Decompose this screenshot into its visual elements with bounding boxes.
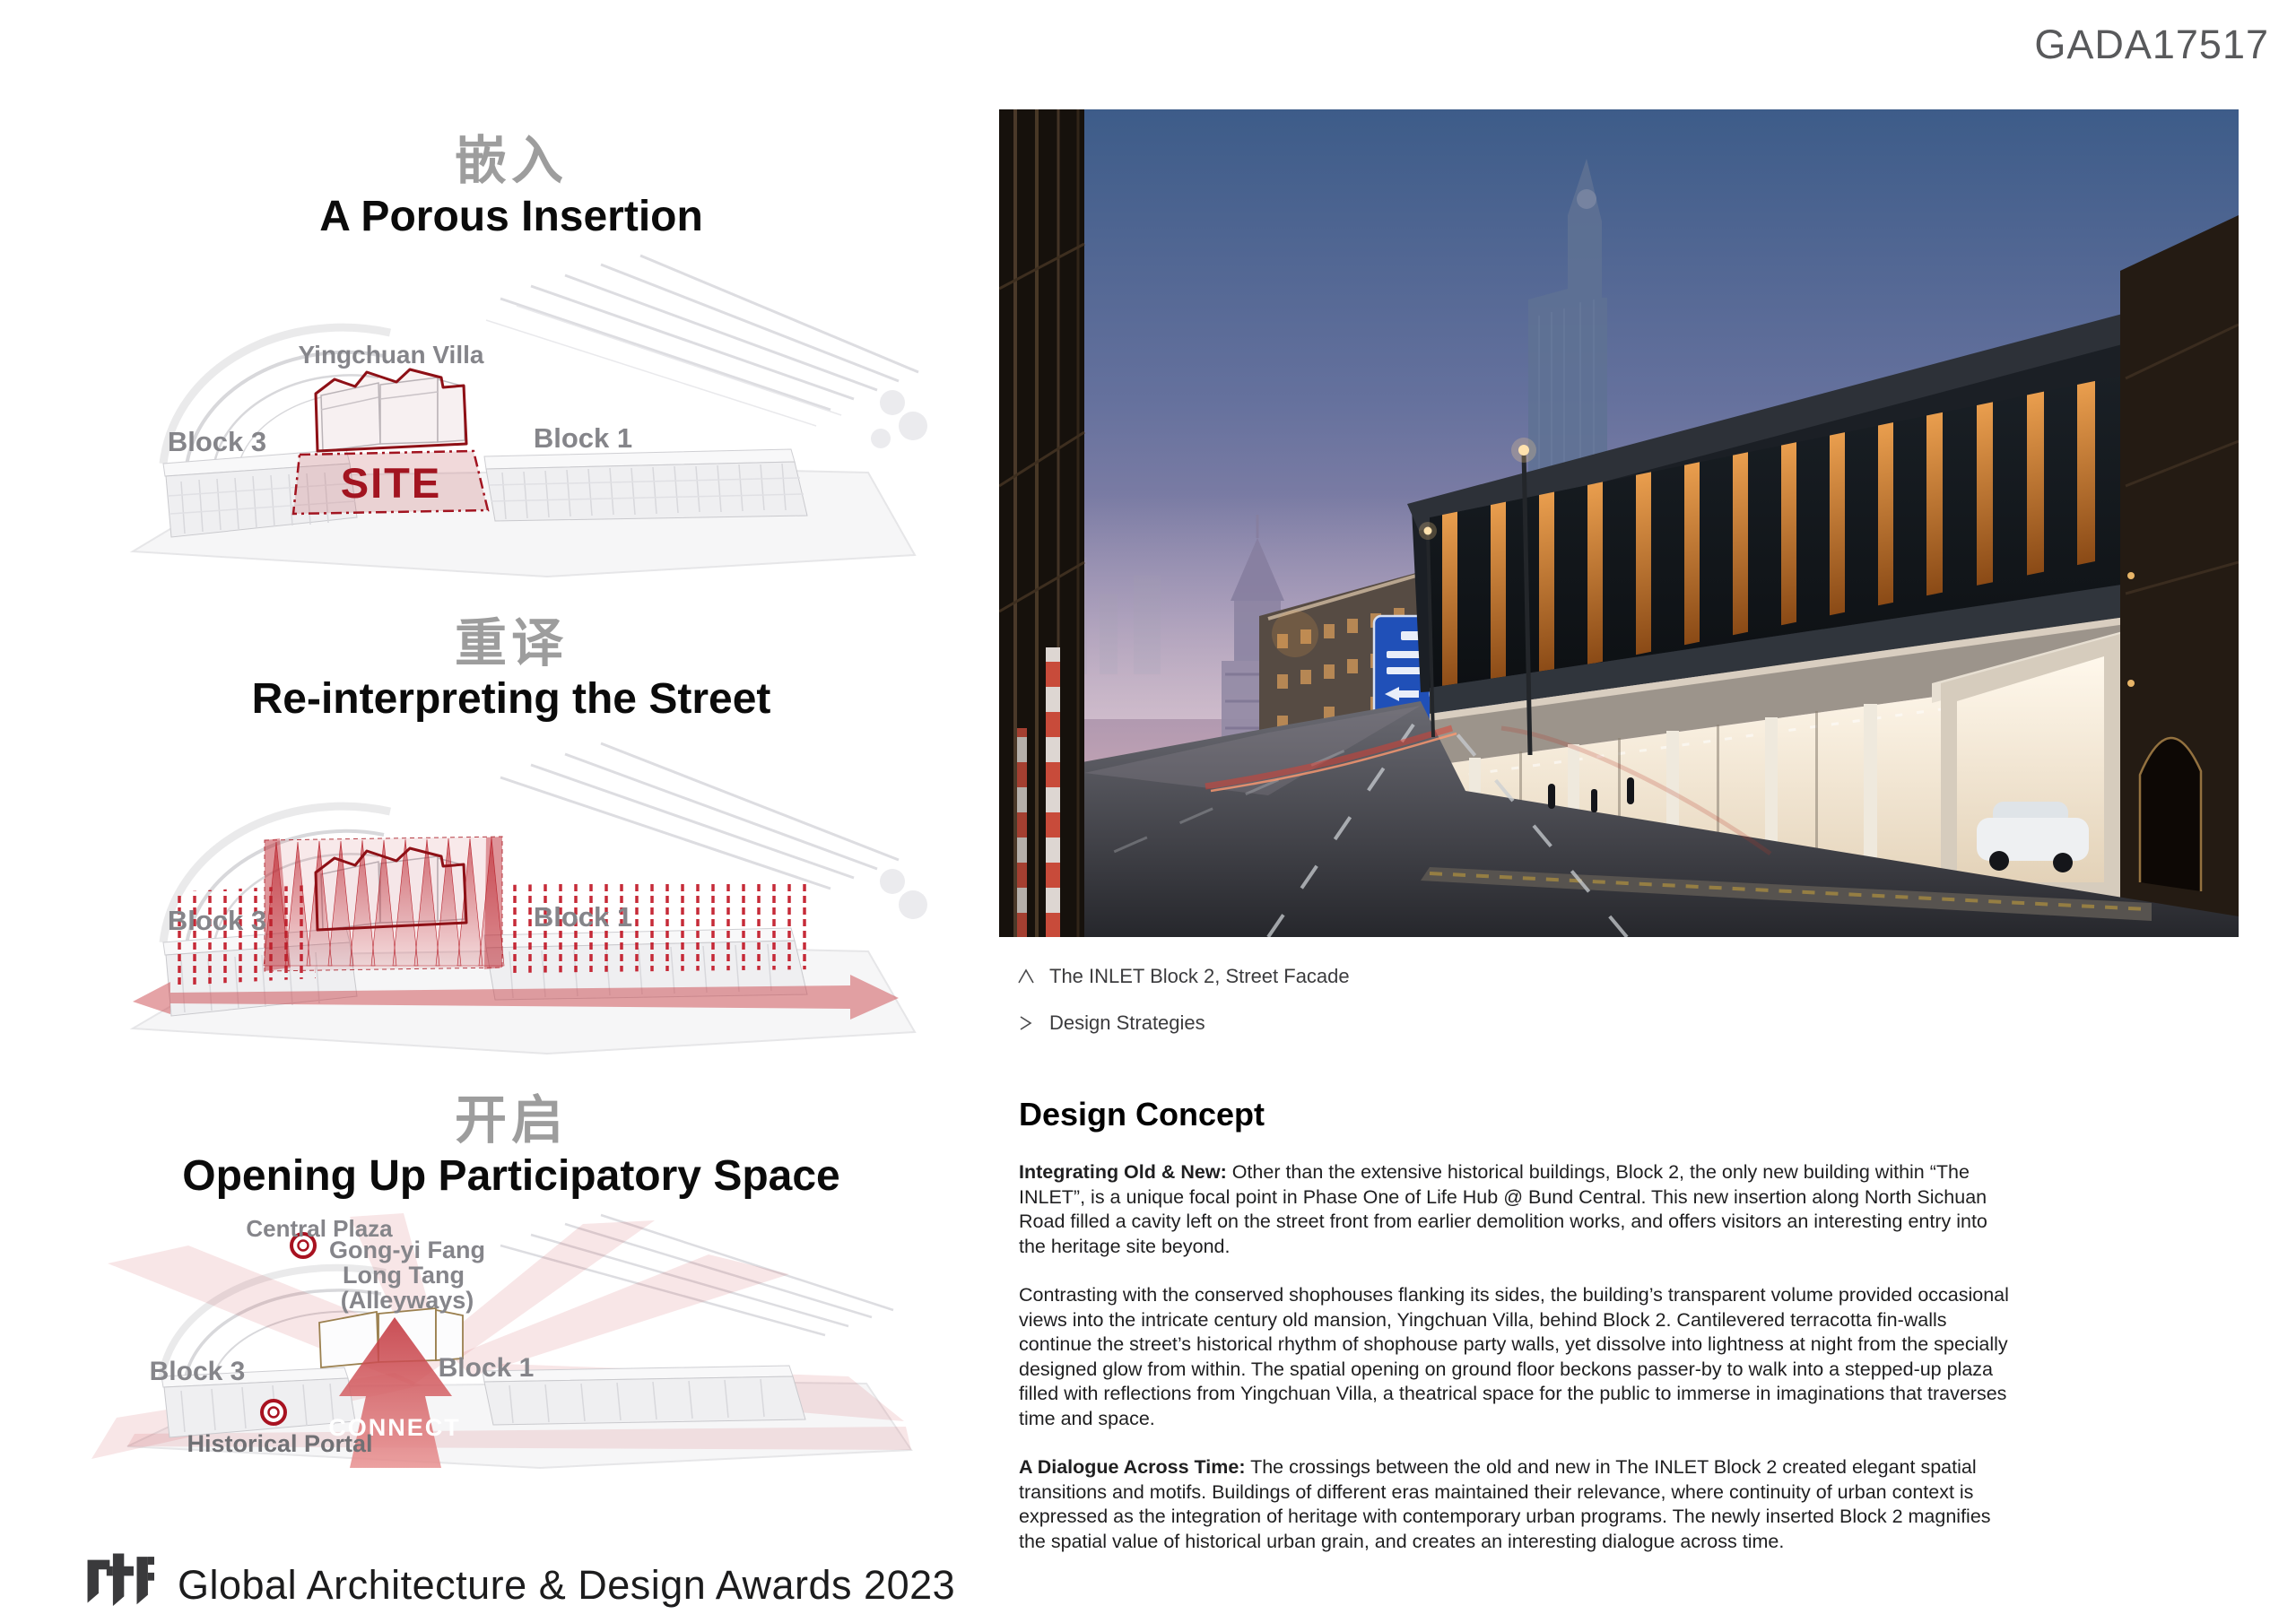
section-porous-insertion: 嵌入 A Porous Insertion [81, 133, 942, 607]
chevron-right-icon [1017, 1015, 1035, 1031]
award-title: Global Architecture & Design Awards 2023 [178, 1562, 955, 1609]
chevron-up-icon [1017, 968, 1035, 985]
section2-title-zh: 重译 [81, 615, 942, 673]
presentation-board: GADA17517 嵌入 A Porous Insertion [0, 0, 2296, 1623]
trees [871, 390, 927, 448]
street-rhythm-diagram: Block 3 Block 1 [81, 733, 942, 1075]
footer: Global Architecture & Design Awards 2023 [84, 1551, 955, 1619]
strategies-caption: Design Strategies [1017, 1011, 1205, 1035]
striped-pole [1046, 647, 1060, 937]
paragraph-lead: A Dialogue Across Time: [1019, 1456, 1246, 1478]
site-diagram: Yingchuan Villa Block 3 Block 1 SITE [81, 250, 942, 607]
block1-label: Block 1 [534, 422, 632, 454]
section3-title-en: Opening Up Participatory Space [81, 1152, 942, 1201]
block1-building [484, 449, 807, 521]
connection-diagram: Central Plaza Gong-yi Fang Long Tang (Al… [81, 1210, 942, 1489]
villa-label: Yingchuan Villa [299, 341, 484, 369]
strategies-caption-text: Design Strategies [1049, 1011, 1205, 1035]
gongyi-label-3: (Alleyways) [341, 1287, 474, 1314]
rtf-logo [84, 1551, 154, 1619]
photo-caption-text: The INLET Block 2, Street Facade [1049, 965, 1350, 988]
street-facade-photo [999, 109, 2239, 937]
design-concept-heading: Design Concept [1019, 1096, 2011, 1133]
section1-title-zh: 嵌入 [81, 133, 942, 191]
paragraph-contrasting: Contrasting with the conserved shophouse… [1019, 1283, 2011, 1431]
gongyi-label-1: Gong-yi Fang [329, 1237, 485, 1263]
block3-label: Block 3 [168, 905, 266, 936]
section-participatory-space: 开启 Opening Up Participatory Space [81, 1092, 942, 1489]
design-concept: Design Concept Integrating Old & New: Ot… [1019, 1096, 2011, 1578]
block1-label: Block 1 [439, 1353, 535, 1383]
entry-code: GADA17517 [2034, 22, 2269, 68]
section2-title-en: Re-interpreting the Street [81, 675, 942, 724]
historical-portal-marker [262, 1401, 285, 1424]
gongyi-label-2: Long Tang [343, 1262, 465, 1289]
block3-label: Block 3 [150, 1357, 246, 1386]
paragraph-dialogue: A Dialogue Across Time: The crossings be… [1019, 1455, 2011, 1554]
historical-portal-label: Historical Portal [187, 1430, 372, 1457]
brick-building [2120, 215, 2239, 937]
section3-title-zh: 开启 [81, 1092, 942, 1150]
block3-label: Block 3 [168, 426, 266, 457]
section1-title-en: A Porous Insertion [81, 193, 942, 241]
site-label: SITE [341, 459, 441, 507]
block1-label: Block 1 [534, 901, 632, 933]
scaffolding [999, 109, 1084, 937]
longtang-roofs [500, 256, 918, 410]
paragraph-integrating: Integrating Old & New: Other than the ex… [1019, 1160, 2011, 1259]
photo-caption: The INLET Block 2, Street Facade [1017, 965, 1350, 988]
section-reinterpreting-street: 重译 Re-interpreting the Street [81, 615, 942, 1075]
paragraph-lead: Integrating Old & New: [1019, 1161, 1227, 1183]
